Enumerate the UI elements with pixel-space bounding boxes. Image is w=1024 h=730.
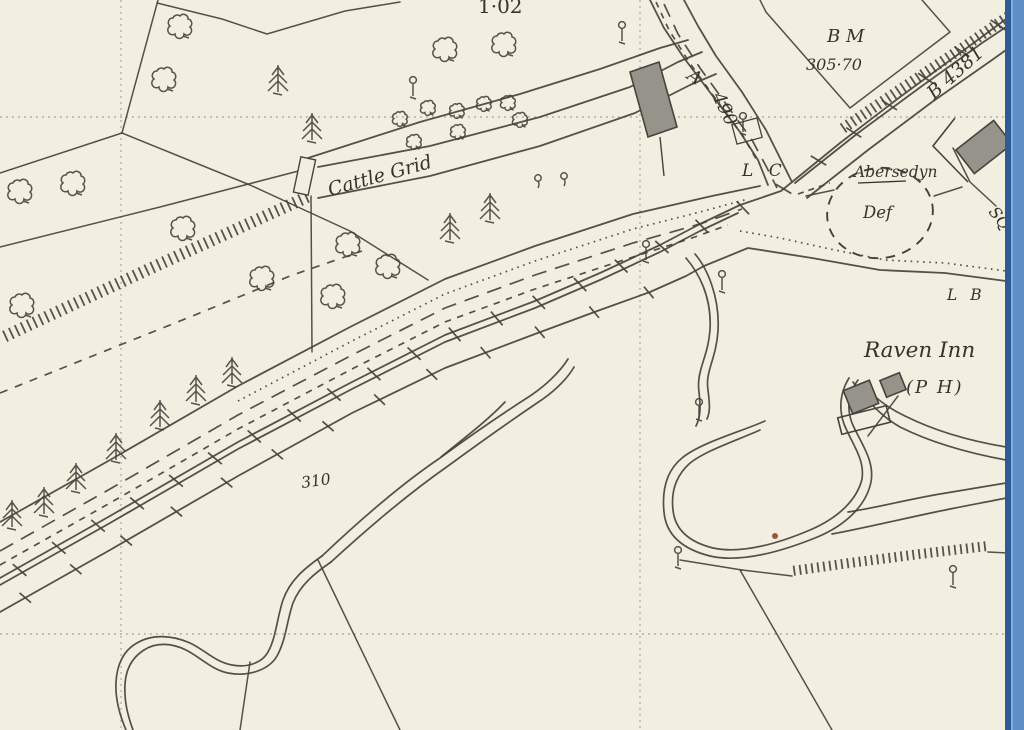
conifer-tree-icon xyxy=(66,463,86,493)
stream-bank xyxy=(116,556,322,730)
cutting-hachures xyxy=(198,240,203,251)
cutting-hachures xyxy=(80,295,85,306)
ditch-hachures xyxy=(847,558,848,568)
field-boundary xyxy=(742,570,792,576)
cutting-hachures xyxy=(263,211,268,222)
cutting-hachures xyxy=(251,216,256,227)
cutting-hachures xyxy=(50,309,55,320)
boundary-def-label: Def xyxy=(862,203,895,222)
deciduous-tree-icon xyxy=(433,37,457,61)
conifer-tree-icon xyxy=(2,500,22,530)
telegraph-pole-icon xyxy=(675,547,682,569)
cutting-hachures xyxy=(245,219,250,230)
cutting-hachures xyxy=(91,289,96,300)
conifer-tree-icon xyxy=(34,487,54,517)
railway-tick xyxy=(272,449,283,459)
road-a-letter: A xyxy=(682,64,706,90)
benchmark-label: B M xyxy=(826,26,865,47)
stream-bank xyxy=(686,258,710,426)
embankment-hachures xyxy=(885,93,891,102)
deciduous-tree-icon xyxy=(250,266,274,290)
grid-lines xyxy=(0,0,1006,730)
cutting-hachures xyxy=(115,278,120,289)
telegraph-pole-icon xyxy=(410,77,417,99)
ditch-hachures xyxy=(954,545,955,555)
cutting-hachures xyxy=(38,314,43,325)
embankment-hachures xyxy=(890,90,896,99)
cutting-hachures xyxy=(133,270,138,281)
cutting-hachures xyxy=(209,235,214,246)
embankment-hachures xyxy=(930,63,936,72)
deciduous-tree-icon xyxy=(376,254,400,278)
deciduous-bush-icon xyxy=(392,111,407,126)
ditch-hachures xyxy=(800,565,801,575)
embankment-hachures xyxy=(905,80,911,89)
cutting-hachures xyxy=(156,259,161,270)
conifer-tree-icon xyxy=(440,213,460,243)
letter-box-label: L B xyxy=(946,286,986,304)
parcel-area-label: 1·02 xyxy=(478,0,523,18)
stream-bank xyxy=(331,367,574,562)
deciduous-tree-icon xyxy=(336,232,360,256)
ditch-hachures xyxy=(859,557,860,567)
cutting-hachures xyxy=(257,213,262,224)
cutting-hachures xyxy=(192,243,197,254)
ditch-hachures xyxy=(811,563,812,573)
cutting-hachures xyxy=(233,224,238,235)
ditch-hachures xyxy=(817,562,818,572)
inn-type-label: (P H) xyxy=(906,377,964,398)
red-dot xyxy=(772,533,778,539)
stream-bank xyxy=(832,498,1006,534)
benchmark-value: 305·70 xyxy=(806,55,862,74)
deciduous-tree-icon xyxy=(10,293,34,317)
conifer-tree-icon xyxy=(222,357,242,387)
spring-symbol-icon xyxy=(535,175,541,188)
embankment-hachures xyxy=(855,113,861,122)
deciduous-tree-icon xyxy=(61,171,85,195)
deciduous-bush-icon xyxy=(450,124,465,139)
cutting-hachures xyxy=(103,284,108,295)
telegraph-pole-icon xyxy=(619,22,626,44)
cutting-hachures xyxy=(121,276,126,287)
cutting-hachures xyxy=(68,300,73,311)
ditch-hachures xyxy=(823,562,824,572)
deciduous-bush-icon xyxy=(420,100,435,115)
deciduous-bush-icon xyxy=(512,112,527,127)
boundary-dash xyxy=(0,225,728,565)
embankment-hachures xyxy=(850,117,856,126)
map-canvas: 1·02 B M 305·70 A 490 B 4381 L C Cattle … xyxy=(0,0,1024,730)
ditch-hachures xyxy=(877,554,878,564)
ditch-hachures xyxy=(889,553,890,563)
ditch-hachures xyxy=(966,543,967,553)
stream-bank xyxy=(848,483,1006,512)
field-boundary xyxy=(318,560,400,730)
railway-tick xyxy=(589,306,599,317)
conifer-tree-icon xyxy=(150,400,170,430)
ditch-hachures xyxy=(960,544,961,554)
cutting-hachures xyxy=(280,203,285,214)
level-crossing-label: L C xyxy=(741,161,787,181)
cutting-hachures xyxy=(268,208,273,219)
deciduous-tree-icon xyxy=(152,67,176,91)
cutting-hachures xyxy=(162,257,167,268)
field-boundary xyxy=(680,560,742,570)
page-edge-highlight xyxy=(1011,0,1013,730)
ditch-hachures xyxy=(865,556,866,566)
ditch-hachures xyxy=(931,548,932,558)
ditch-hachures xyxy=(841,559,842,569)
ditch-hachures xyxy=(913,550,914,560)
road-edge xyxy=(684,0,792,182)
cutting-hachures xyxy=(144,265,149,276)
railway-tick xyxy=(644,287,654,299)
ditch-hachures xyxy=(907,551,908,561)
railway-tick xyxy=(171,507,182,517)
ditch-hachures xyxy=(949,546,950,556)
cutting-hachures xyxy=(174,251,179,262)
dotted-track xyxy=(238,199,748,401)
cattle-grid-bars xyxy=(293,157,315,195)
inn-name-label: Raven Inn xyxy=(863,338,975,363)
cutting-hachures xyxy=(150,262,155,273)
ditch-hachures xyxy=(978,542,979,552)
cutting-hachures xyxy=(9,328,14,339)
place-name-underline xyxy=(858,181,906,183)
ditch-hachures xyxy=(901,551,902,561)
conifer-tree-icon xyxy=(106,433,126,463)
cutting-hachures xyxy=(27,320,32,331)
conifer-tree-icon xyxy=(186,375,206,405)
railway-tick xyxy=(120,536,131,546)
cutting-hachures xyxy=(85,292,90,303)
field-boundary xyxy=(157,2,400,34)
field-boundary xyxy=(0,168,310,247)
embankment-hachures xyxy=(875,100,881,109)
spring-symbol-icon xyxy=(561,173,567,186)
flagstaff xyxy=(660,137,664,176)
embankment-hachures xyxy=(865,106,871,115)
ditch-hachures xyxy=(871,555,872,565)
inn-building xyxy=(880,373,906,398)
cutting-hachures xyxy=(56,306,61,317)
embankment-hachures xyxy=(925,66,931,75)
cutting-hachures xyxy=(186,246,191,257)
cutting-hachures xyxy=(215,232,220,243)
cutting-hachures xyxy=(203,238,208,249)
deciduous-tree-icon xyxy=(8,179,32,203)
cutting-hachures xyxy=(239,221,244,232)
field-boundary xyxy=(0,0,158,173)
ditch-hachures xyxy=(984,541,985,551)
embankment-hachures xyxy=(935,60,941,69)
map-linework xyxy=(0,0,1008,730)
cutting-hachures xyxy=(286,200,291,211)
conifer-tree-icon xyxy=(268,65,288,95)
cutting-hachures xyxy=(21,322,26,333)
page-edge xyxy=(1005,0,1024,730)
field-boundary xyxy=(934,187,962,196)
embankment-hachures xyxy=(910,76,916,85)
railway-tick xyxy=(481,347,491,358)
cutting-hachures xyxy=(3,331,8,342)
embankment-hachures xyxy=(940,56,946,65)
field-boundary xyxy=(311,196,312,352)
cutting-hachures xyxy=(97,287,102,298)
cattle-grid-label: Cattle Grid xyxy=(325,151,434,201)
embankment-hachures xyxy=(860,110,866,119)
cutting-hachures xyxy=(138,267,143,278)
railway-tick xyxy=(535,327,545,338)
footpath xyxy=(0,251,362,393)
railway-tick xyxy=(221,478,232,488)
page-edge-dark xyxy=(1005,0,1011,730)
stream-bank xyxy=(125,562,331,730)
ditch-hachures xyxy=(972,543,973,553)
deciduous-tree-icon xyxy=(492,32,516,56)
cutting-hachures xyxy=(127,273,132,284)
cutting-hachures xyxy=(221,230,226,241)
road-edge xyxy=(308,40,688,158)
cutting-hachures xyxy=(74,298,79,309)
cutting-hachures xyxy=(168,254,173,265)
embankment-hachures xyxy=(870,103,876,112)
ditch-hachures xyxy=(805,564,806,574)
deciduous-tree-icon xyxy=(171,216,195,240)
cutting-hachures xyxy=(298,195,303,206)
field-boundary xyxy=(760,0,950,108)
field-boundary xyxy=(240,662,250,730)
cutting-hachures xyxy=(292,197,297,208)
embankment-hachures xyxy=(900,83,906,92)
embankment-hachures xyxy=(895,86,901,95)
railway-tick xyxy=(426,369,437,379)
ditch-hachures xyxy=(937,547,938,557)
dotted-track xyxy=(740,231,1006,271)
telegraph-pole-icon xyxy=(719,271,726,293)
railway-tick xyxy=(322,421,333,431)
cutting-hachures xyxy=(62,303,67,314)
railway-tick xyxy=(70,564,81,574)
ditch-hachures xyxy=(883,554,884,564)
cutting-hachures xyxy=(180,248,185,259)
ditch-hachures xyxy=(794,566,795,576)
ditch-hachures xyxy=(835,560,836,570)
deciduous-tree-icon xyxy=(321,284,345,308)
spot-height-label: 310 xyxy=(300,470,332,492)
embankment-hachures xyxy=(840,123,846,132)
cutting-hachures xyxy=(109,281,114,292)
ditch-hachures xyxy=(919,549,920,559)
ditch-hachures xyxy=(943,546,944,556)
ditch-hachures xyxy=(925,548,926,558)
tower-building xyxy=(630,62,677,137)
ditch-hachures xyxy=(895,552,896,562)
railway-tick xyxy=(374,394,385,404)
deciduous-bush-icon xyxy=(406,134,421,149)
roadside-building xyxy=(956,120,1012,173)
conifer-tree-icon xyxy=(480,193,500,223)
ditch-hachures xyxy=(853,558,854,568)
ditch-hachures xyxy=(829,561,830,571)
scanned-os-map: 1·02 B M 305·70 A 490 B 4381 L C Cattle … xyxy=(0,0,1024,730)
cutting-hachures xyxy=(32,317,37,328)
telegraph-pole-icon xyxy=(950,566,957,588)
deciduous-tree-icon xyxy=(168,14,192,38)
cutting-hachures xyxy=(15,325,20,336)
cutting-hachures xyxy=(227,227,232,238)
field-boundary xyxy=(740,570,832,730)
stream-bank xyxy=(322,359,568,556)
railway-tick xyxy=(20,593,31,603)
cutting-hachures xyxy=(44,311,49,322)
cutting-hachures xyxy=(274,205,279,216)
boundary-dash xyxy=(656,2,759,164)
place-name-label: Abersedyn xyxy=(852,163,938,181)
